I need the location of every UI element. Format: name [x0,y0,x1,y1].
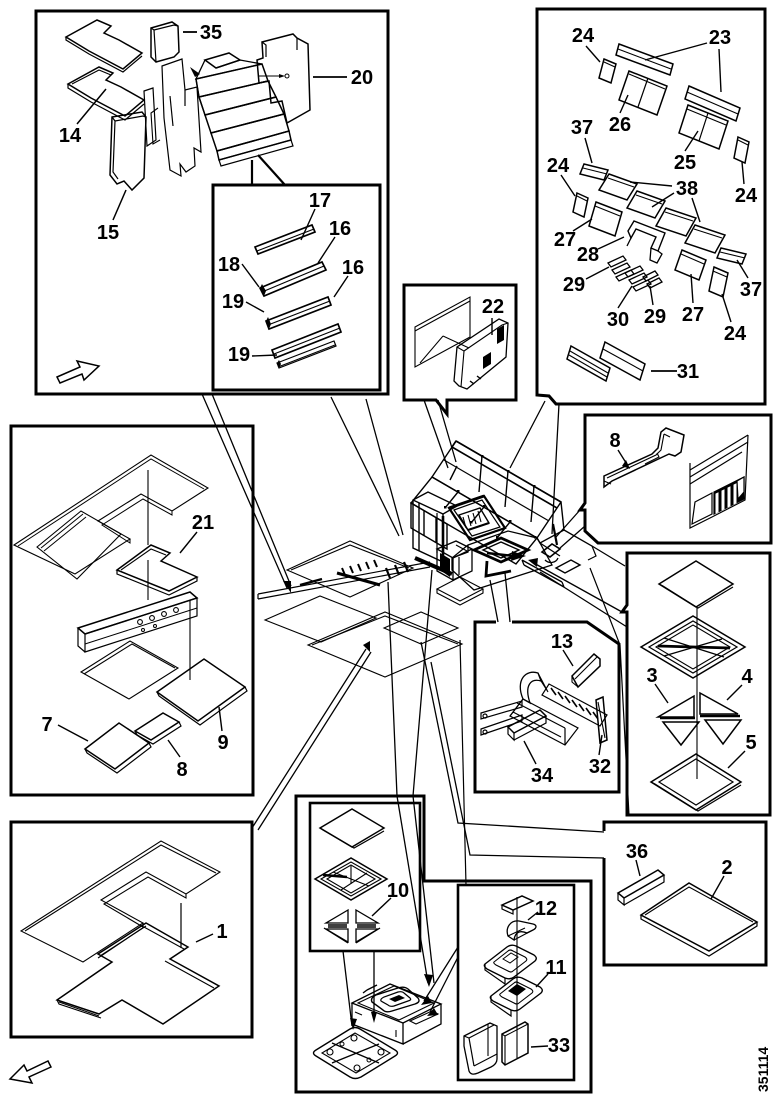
svg-text:19: 19 [222,291,244,313]
svg-text:23: 23 [709,27,731,49]
svg-text:8: 8 [609,430,620,452]
svg-text:25: 25 [674,152,696,174]
svg-text:15: 15 [97,222,119,244]
svg-text:17: 17 [309,190,331,212]
svg-text:1: 1 [216,921,227,943]
svg-text:37: 37 [740,279,762,301]
svg-text:28: 28 [577,244,599,266]
svg-text:33: 33 [548,1035,570,1057]
svg-text:11: 11 [545,957,566,979]
svg-text:4: 4 [741,666,753,688]
svg-text:18: 18 [218,254,240,276]
svg-text:30: 30 [607,309,629,331]
svg-text:9: 9 [217,732,228,754]
svg-text:21: 21 [192,512,214,534]
svg-text:14: 14 [59,125,82,147]
svg-text:2: 2 [721,857,732,879]
svg-text:8: 8 [176,759,187,781]
svg-text:32: 32 [589,756,611,778]
svg-text:19: 19 [228,344,250,366]
svg-text:27: 27 [682,304,704,326]
svg-text:22: 22 [482,296,504,318]
svg-text:16: 16 [329,218,351,240]
svg-text:10: 10 [387,880,409,902]
svg-text:24: 24 [724,323,747,345]
svg-text:29: 29 [563,274,585,296]
svg-text:13: 13 [551,631,573,653]
svg-text:3: 3 [646,665,657,687]
svg-text:5: 5 [745,732,756,754]
svg-text:351114: 351114 [755,1047,771,1092]
svg-text:24: 24 [547,155,570,177]
svg-text:37: 37 [571,117,593,139]
svg-text:27: 27 [554,229,576,251]
svg-text:24: 24 [735,185,758,207]
svg-text:24: 24 [572,25,595,47]
svg-text:29: 29 [644,306,666,328]
svg-text:35: 35 [200,22,222,44]
svg-text:38: 38 [676,178,698,200]
svg-text:7: 7 [41,714,52,736]
svg-text:26: 26 [609,114,631,136]
svg-text:12: 12 [535,898,557,920]
svg-text:36: 36 [626,841,648,863]
svg-text:31: 31 [677,361,699,383]
svg-text:20: 20 [351,67,373,89]
svg-text:16: 16 [342,257,364,279]
svg-text:34: 34 [531,765,554,787]
